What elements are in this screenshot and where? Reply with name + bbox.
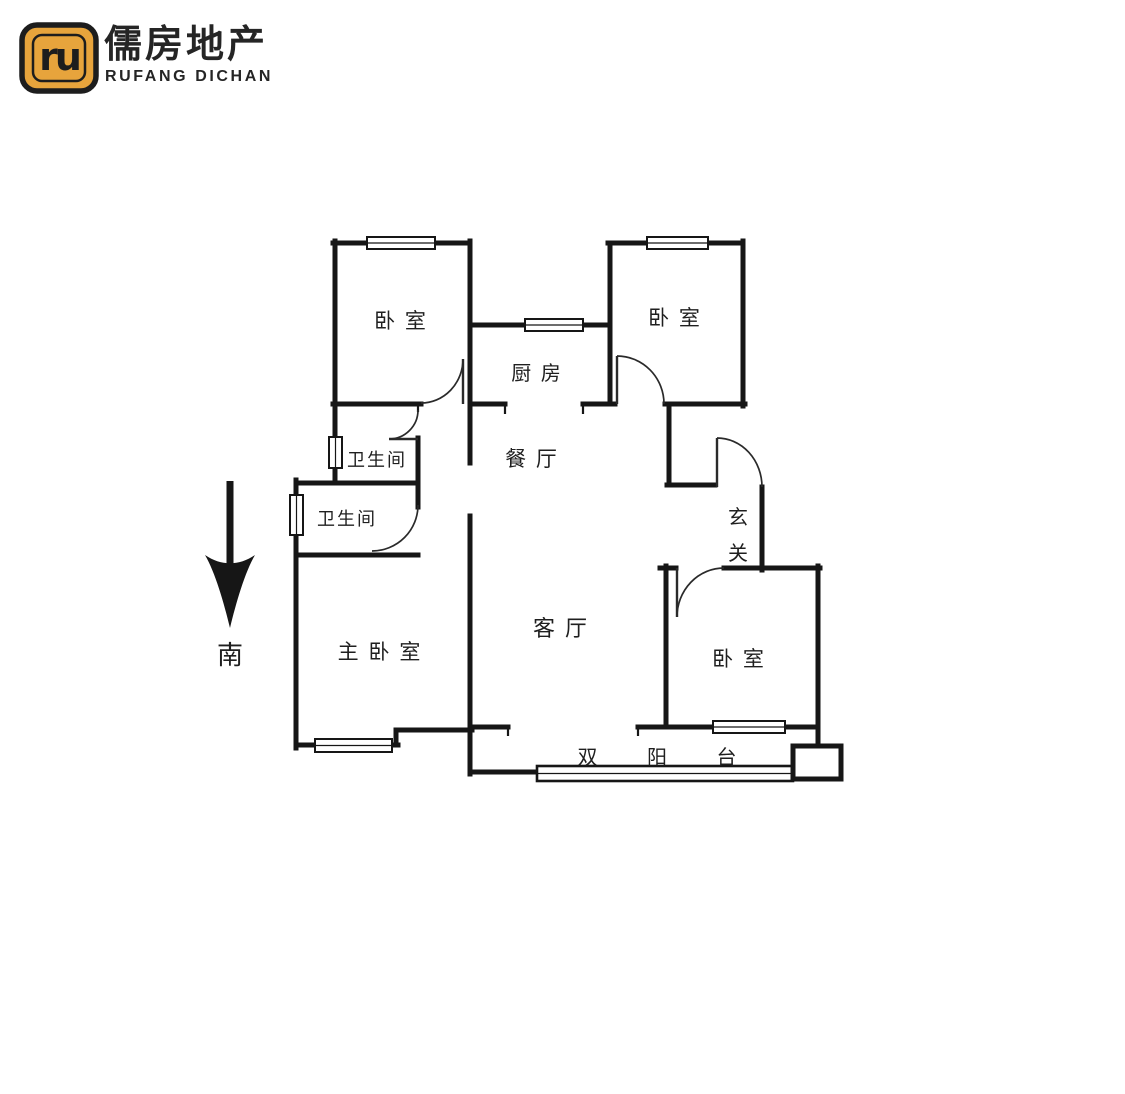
- window-bedroom-top-left: [367, 237, 435, 249]
- room-label-bedroom-top-right: 卧 室: [648, 307, 702, 330]
- brand-name-cn: 儒房地产: [104, 24, 268, 66]
- equipment-platform: [793, 746, 841, 779]
- room-label-kitchen: 厨 房: [511, 362, 563, 385]
- window-bathroom-upper: [329, 437, 342, 468]
- room-label-entry-1: 玄: [728, 506, 750, 529]
- room-label-bedroom-right: 卧 室: [712, 648, 766, 671]
- south-label: 南: [217, 640, 245, 670]
- south-arrow-icon: [205, 481, 255, 628]
- room-label-bathroom-upper: 卫生间: [347, 450, 407, 470]
- door-arc-bedroom-right: [677, 568, 724, 617]
- room-label-bathroom-lower: 卫生间: [317, 509, 377, 529]
- logo-monogram: ru: [39, 35, 79, 79]
- room-label-dining: 餐 厅: [505, 448, 559, 471]
- room-label-living-room: 客 厅: [533, 616, 589, 641]
- room-label-entry-2: 关: [728, 542, 750, 565]
- brand-logo: ru 儒房地产 RUFANG DICHAN: [22, 24, 273, 91]
- room-labels: 卧 室 卧 室 厨 房 餐 厅 卫生间 卫生间 主 卧 室 客 厅 玄 关 卧 …: [317, 307, 766, 769]
- room-label-master-bedroom: 主 卧 室: [338, 641, 423, 664]
- brand-name-en: RUFANG DICHAN: [105, 68, 273, 85]
- floorplan-page: ru 儒房地产 RUFANG DICHAN 南: [0, 0, 1125, 1094]
- window-master-bedroom: [315, 739, 392, 752]
- door-arc-entry: [717, 438, 762, 487]
- floorplan-image: ru 儒房地产 RUFANG DICHAN 南: [0, 0, 1125, 1094]
- room-label-balcony: 双 阳 台: [577, 746, 758, 769]
- door-arc-bathroom-upper: [389, 410, 418, 439]
- window-kitchen: [525, 319, 583, 331]
- door-arc-bedroom-top-left: [421, 359, 463, 403]
- window-bedroom-top-right: [647, 237, 708, 249]
- room-label-bedroom-top-left: 卧 室: [374, 310, 428, 333]
- door-arc-bathroom-lower: [372, 505, 418, 551]
- window-bedroom-right: [713, 721, 785, 733]
- window-bathroom-lower: [290, 495, 303, 535]
- door-arc-bedroom-top-right: [617, 356, 664, 404]
